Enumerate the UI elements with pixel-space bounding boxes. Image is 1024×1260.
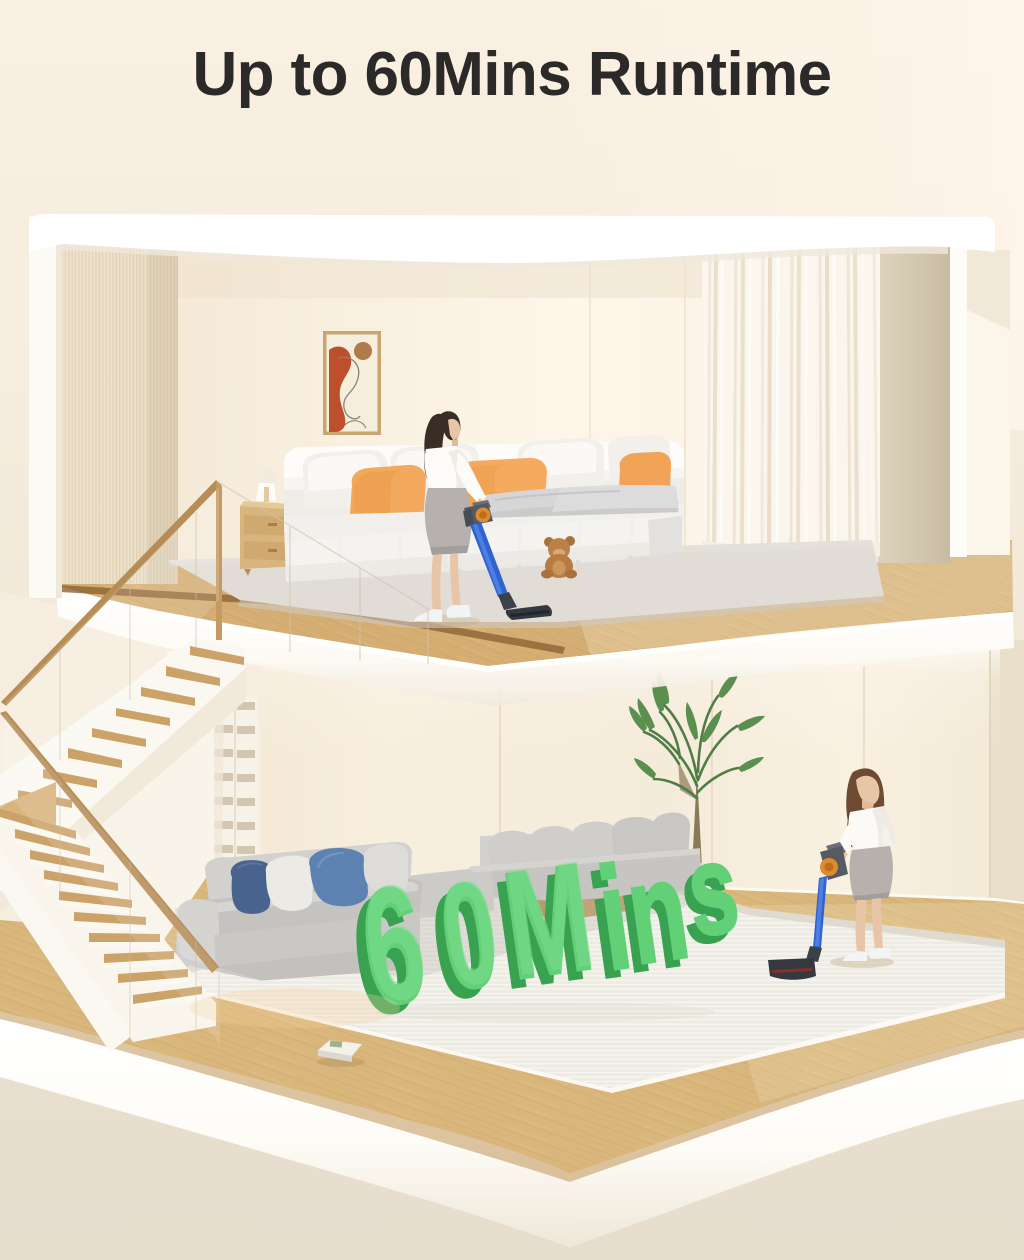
svg-text:Up to 60Mins Runtime: Up to 60Mins Runtime [192, 40, 831, 109]
